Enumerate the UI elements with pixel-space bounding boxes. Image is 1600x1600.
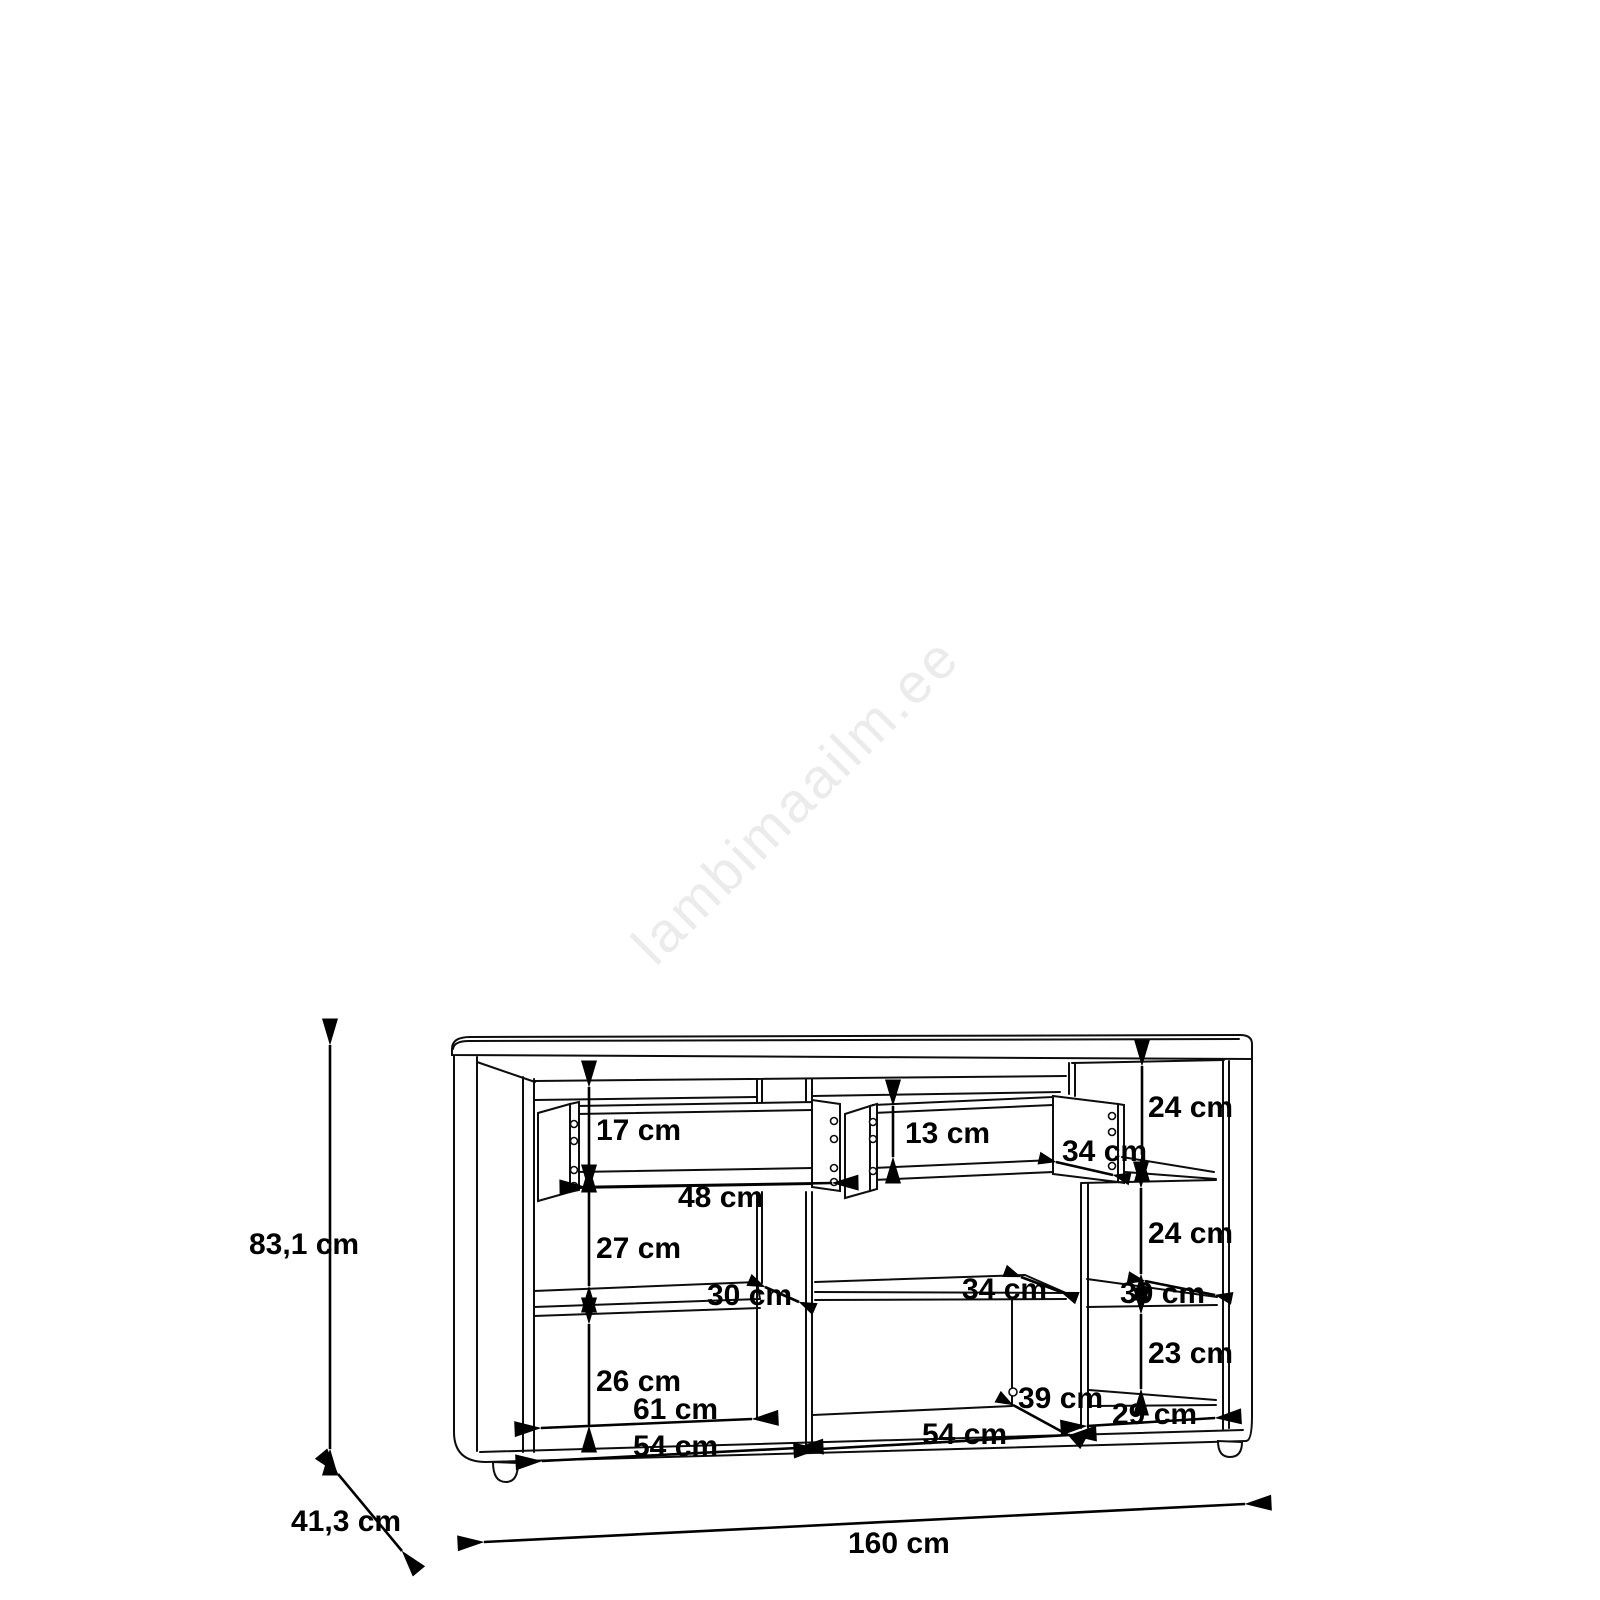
right-drawer-left-plate bbox=[845, 1106, 870, 1198]
stray-mark bbox=[1009, 1388, 1017, 1396]
watermark-text: lambimaailm.ee bbox=[620, 625, 972, 977]
left-side-outer bbox=[454, 1056, 486, 1462]
left-interior-wall bbox=[523, 1077, 534, 1452]
left-drawer-right-plate bbox=[812, 1100, 840, 1191]
furniture-dimension-diagram: lambimaailm.ee bbox=[0, 0, 1600, 1600]
dim-left-shelf-depth: 30 cm bbox=[707, 1279, 792, 1312]
dim-left-gap-upper: 27 cm bbox=[596, 1232, 681, 1265]
left-side-top-depth bbox=[477, 1062, 535, 1082]
plinth-top-line bbox=[480, 1430, 1243, 1452]
dim-overall-depth: 41,3 cm bbox=[291, 1505, 401, 1538]
top-panel-edge-profile bbox=[453, 1039, 1239, 1049]
dim-right-compartment-width: 29 cm bbox=[1112, 1398, 1197, 1431]
dim-left-compartment-width: 54 cm bbox=[633, 1430, 718, 1463]
dim-right-shelf-depth: 39 cm bbox=[1120, 1277, 1205, 1310]
center-divider-upper bbox=[757, 1079, 812, 1103]
left-foot bbox=[493, 1462, 518, 1482]
center-divider-lower bbox=[757, 1192, 812, 1447]
interior-top-line bbox=[535, 1076, 1066, 1081]
dim-right-gap-top: 24 cm bbox=[1148, 1091, 1233, 1124]
back-rail-left bbox=[535, 1097, 756, 1100]
back-rail-right bbox=[813, 1092, 1060, 1096]
dim-right-gap-lower: 23 cm bbox=[1148, 1337, 1233, 1370]
left-drawer-left-plate bbox=[538, 1104, 570, 1201]
middle-floor-back-edge bbox=[813, 1406, 1012, 1415]
right-column-ceiling bbox=[1072, 1060, 1224, 1063]
sideboard-diagram-canvas: lambimaailm.ee bbox=[0, 0, 1600, 1600]
dim-left-drawer-height: 17 cm bbox=[596, 1114, 681, 1147]
right-foot bbox=[1218, 1441, 1242, 1457]
dim-right-drawer-depth: 34 cm bbox=[1062, 1135, 1147, 1168]
dim-middle-floor-depth: 39 cm bbox=[1018, 1382, 1103, 1415]
right-drawer-left-plate-edge bbox=[870, 1104, 877, 1191]
dim-overall-height: 83,1 cm bbox=[249, 1228, 359, 1261]
left-drawer-left-plate-edge bbox=[570, 1102, 579, 1192]
right-column-left-wall-top bbox=[1069, 1063, 1075, 1096]
dim-overall-width: 160 cm bbox=[848, 1527, 950, 1560]
dim-left-floor-depth: 61 cm bbox=[633, 1393, 718, 1426]
right-side-outer bbox=[1246, 1058, 1252, 1441]
dim-right-gap-mid: 24 cm bbox=[1148, 1217, 1233, 1250]
dim-left-drawer-width: 48 cm bbox=[678, 1181, 763, 1214]
dim-right-drawer-height: 13 cm bbox=[905, 1117, 990, 1150]
dim-middle-shelf-depth: 34 cm bbox=[962, 1273, 1047, 1306]
dim-middle-compartment-width: 54 cm bbox=[922, 1418, 1007, 1451]
